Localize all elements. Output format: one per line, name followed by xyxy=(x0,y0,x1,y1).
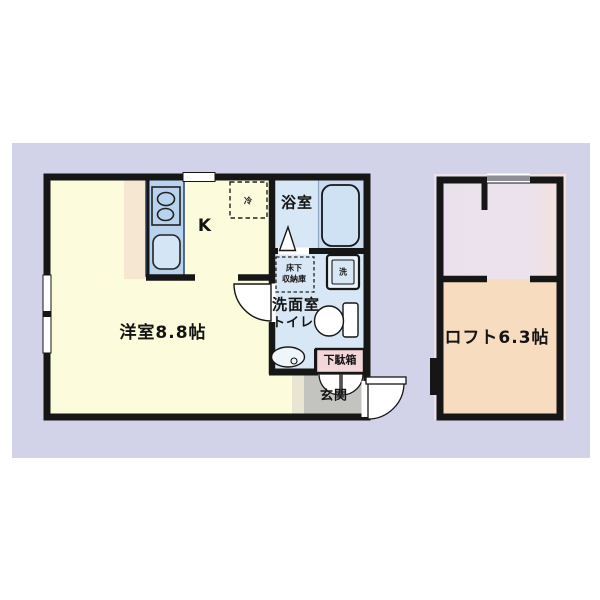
entrance-step-strip xyxy=(292,374,306,417)
entrance-label: 玄関 xyxy=(320,390,348,405)
shoe-cabinet-label: 下駄箱 xyxy=(324,355,357,368)
refrigerator-label: 冷 xyxy=(244,196,252,205)
loft-unit xyxy=(430,174,566,421)
loft-wall-bump xyxy=(430,358,438,395)
entrance-door-icon xyxy=(362,377,407,419)
loft-label: ロフト6.3帖 xyxy=(444,329,549,349)
loft-window-icon xyxy=(487,174,530,183)
main-room-label: 洋室8.8帖 xyxy=(119,324,206,344)
bathtub-icon xyxy=(322,185,359,246)
bathroom-label: 浴室 xyxy=(281,194,313,211)
window-left-icon xyxy=(43,275,51,353)
toilet-label: トイレ xyxy=(272,317,314,332)
floorplan-canvas: K 冷 浴室 床下 収納庫 洗 洗面室 トイレ 下駄箱 玄関 洋室8.8帖 ロフ… xyxy=(0,0,600,600)
underfloor-storage-label-line2: 収納庫 xyxy=(282,274,306,283)
kitchen-sink-icon xyxy=(153,235,180,269)
window-top-icon xyxy=(183,173,215,182)
main-unit xyxy=(43,173,406,421)
kitchen-floor-strip xyxy=(124,178,146,279)
kitchen-counter xyxy=(146,179,184,276)
washroom-label: 洗面室 xyxy=(272,296,320,313)
kitchen-label: K xyxy=(198,217,212,237)
washing-machine-label: 洗 xyxy=(339,267,347,276)
toilet-icon xyxy=(315,303,359,337)
vanity-sink-icon xyxy=(272,347,305,367)
underfloor-storage-label-line1: 床下 xyxy=(286,263,302,272)
